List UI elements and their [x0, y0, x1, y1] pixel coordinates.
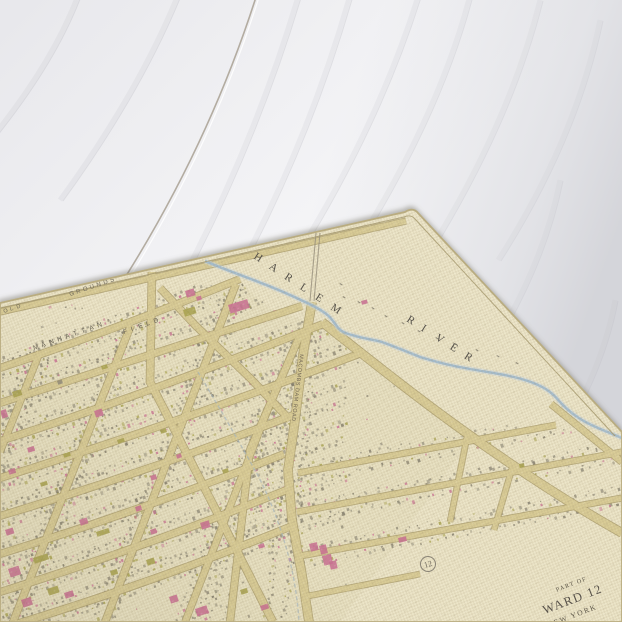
photo-of-antique-atlas-map: HARLEMRIVERMANHATTANFIELDGROUNDSOLDMACOM…	[0, 0, 622, 622]
map-photo-canvas: HARLEMRIVERMANHATTANFIELDGROUNDSOLDMACOM…	[0, 0, 622, 622]
